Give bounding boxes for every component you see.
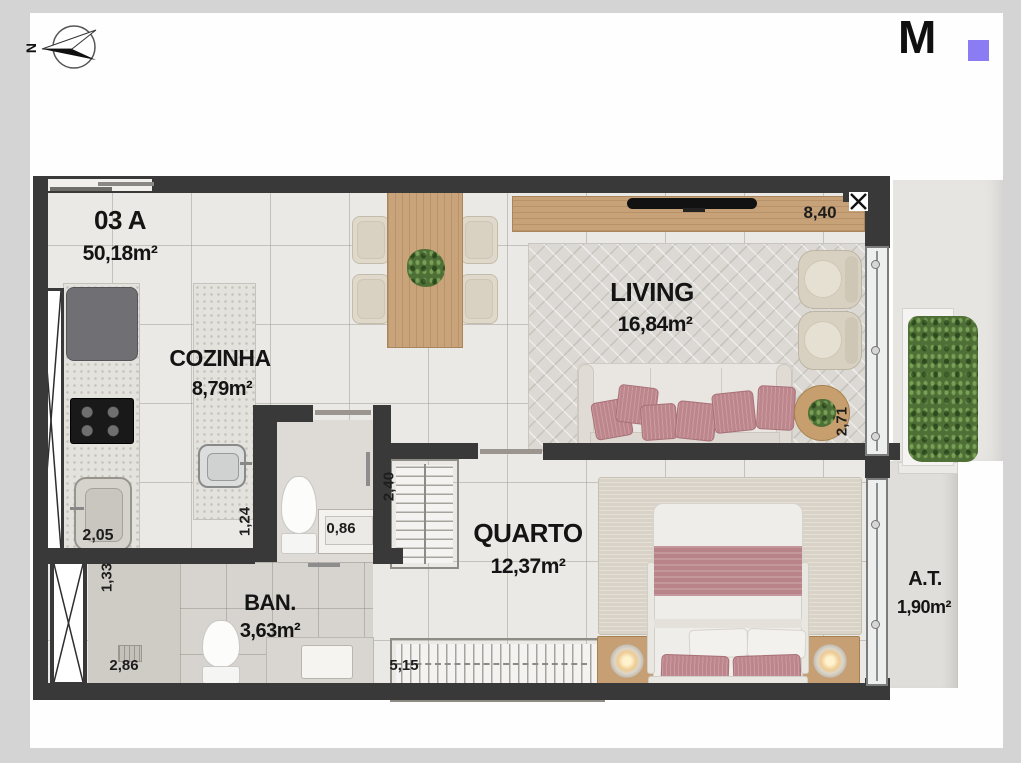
logo-accent-square — [968, 40, 989, 61]
wall-bottom — [33, 683, 885, 700]
bathroom-vanity — [266, 637, 374, 684]
room-area-cozinha: 8,79m² — [162, 378, 282, 401]
dim-271: 2,71 — [835, 402, 850, 442]
armchair — [798, 311, 862, 370]
sofa-pillow — [640, 403, 678, 441]
sofa-pillow — [756, 385, 796, 431]
room-area-ban: 3,63m² — [220, 620, 320, 643]
room-area-living: 16,84m² — [595, 313, 715, 337]
wall-left — [33, 176, 48, 700]
room-label-ban: BAN. — [220, 590, 320, 616]
wall-top — [33, 176, 890, 193]
page: { "compass": { "label": "N" }, "logo": {… — [0, 0, 1021, 763]
balcony-sliding-door — [865, 246, 889, 456]
towel-bar — [366, 452, 370, 486]
dim-086: 0,86 — [316, 521, 366, 536]
room-label-quarto: QUARTO — [458, 518, 598, 549]
room-area-at: 1,90m² — [874, 597, 974, 618]
wall-lavabo-left — [253, 405, 277, 562]
wall-closet-stub — [373, 548, 403, 564]
shaft-lower — [50, 560, 87, 686]
nightstand-lamp — [610, 644, 644, 678]
tv-stand — [683, 208, 705, 212]
wall-right-top — [865, 176, 890, 248]
sofa-pillow — [711, 390, 757, 434]
bathroom-door — [315, 410, 371, 415]
compass-north-label: N — [23, 43, 39, 53]
cooktop — [70, 398, 134, 444]
wall-lavabo-top — [253, 405, 313, 422]
wall-bath-top — [48, 548, 255, 564]
wall-bedroom-left — [373, 443, 478, 459]
faucet-icon — [240, 462, 252, 465]
x-hatch-icon — [54, 564, 83, 682]
dining-chair — [352, 274, 390, 324]
north-arrow-icon — [28, 16, 108, 80]
bed-blanket — [654, 546, 802, 596]
brand-logo: M — [898, 14, 998, 68]
duct-symbol-icon — [849, 192, 868, 211]
table-plant — [407, 249, 445, 287]
logo-letter: M — [898, 14, 934, 60]
faucet-icon — [70, 507, 84, 510]
dim-286: 2,86 — [99, 658, 149, 673]
dim-515: 5,15 — [379, 658, 429, 673]
bed-sheet-fold — [654, 619, 802, 628]
unit-area: 50,18m² — [60, 242, 180, 266]
island-sink — [198, 444, 246, 488]
lavabo-toilet — [281, 476, 315, 554]
room-label-cozinha: COZINHA — [150, 345, 290, 372]
dining-chair — [460, 216, 498, 264]
dim-840: 8,40 — [795, 204, 845, 221]
entry-sliding-door — [98, 182, 154, 186]
room-label-at: A.T. — [885, 568, 965, 591]
room-area-quarto: 12,37m² — [468, 555, 588, 579]
compass: N — [28, 16, 108, 80]
planter-greenery — [908, 316, 978, 462]
wall-bedroom-top — [543, 443, 900, 460]
dining-chair — [352, 216, 390, 264]
dining-chair — [460, 274, 498, 324]
fridge — [66, 287, 138, 361]
entry-sliding-door — [50, 187, 112, 191]
towel-bar — [308, 563, 340, 567]
dim-205: 2,05 — [73, 528, 123, 544]
room-label-living: LIVING — [592, 277, 712, 308]
dim-133: 1,33 — [100, 558, 115, 598]
plan-sheet: 03 A 50,18m² COZINHA 8,79m² LIVING 16,84… — [30, 13, 1003, 748]
armchair — [798, 250, 862, 309]
bedroom-door — [480, 449, 542, 454]
dim-240: 2,40 — [382, 467, 397, 507]
unit-code: 03 A — [70, 205, 170, 236]
bathroom-sink — [301, 645, 353, 679]
dim-124: 1,24 — [238, 502, 253, 542]
nightstand-lamp — [813, 644, 847, 678]
